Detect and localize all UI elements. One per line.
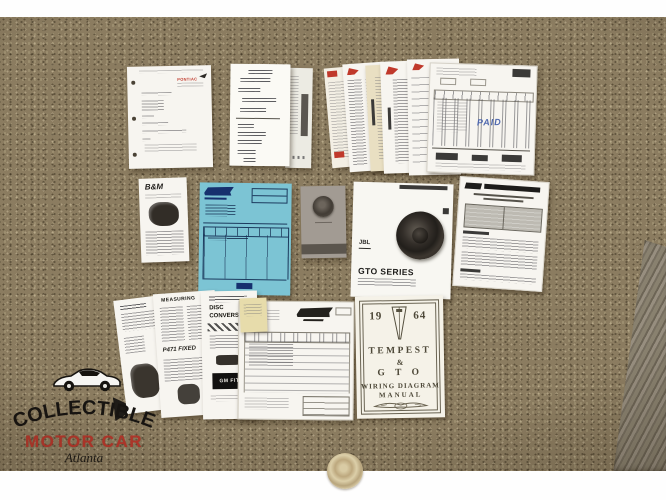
photo-of-documents: PONTIAC — [0, 0, 666, 500]
stamp-block — [502, 155, 522, 163]
section-bar — [463, 230, 489, 235]
text-lines — [124, 336, 146, 354]
letterhead-bird-icon — [199, 73, 207, 78]
logo-underline — [303, 319, 324, 321]
footer-lines — [245, 398, 289, 410]
handwriting-line — [238, 124, 254, 128]
logo-underline — [359, 248, 371, 249]
clutch-illustration — [148, 201, 179, 226]
speaker-photo — [395, 211, 444, 260]
hole-punch — [133, 153, 137, 157]
title-line — [483, 198, 523, 203]
invoice-stack: PAID — [322, 58, 538, 180]
table-body — [202, 234, 289, 279]
letter-header-line — [139, 69, 203, 73]
divider — [253, 195, 287, 196]
dealer-watermark: COLLECTIBLE MOTOR CAR Atlanta — [8, 366, 160, 472]
logo-underline — [205, 197, 227, 199]
model-gto: G T O — [356, 367, 444, 379]
address-lines — [205, 204, 235, 216]
bm-logo: B&M — [145, 182, 164, 192]
year-left: 19 — [369, 310, 382, 322]
text-lines — [460, 273, 536, 284]
entry-line — [208, 237, 248, 241]
wiring-diagram-manual: 19 64 TEMPEST & G T O WIRING DIAGRAM MAN… — [355, 295, 445, 419]
text-lines — [145, 143, 197, 152]
text-lines — [347, 79, 367, 166]
part-number: P471 FIXED — [163, 345, 197, 353]
text-lines — [461, 251, 538, 270]
hole-punch — [131, 81, 135, 85]
speaker-center-cap — [412, 227, 428, 243]
invoice-header-chip — [512, 69, 530, 78]
vendor-script-logo — [296, 307, 333, 317]
receipt-dark-block — [301, 94, 309, 136]
emblem-booklet — [300, 186, 346, 259]
vendor-script-logo — [203, 186, 234, 195]
handwriting-line — [238, 88, 260, 92]
receipt-row-marks — [287, 156, 307, 159]
pontiac-arrowhead-icon — [391, 306, 408, 340]
cover-photo-band — [301, 244, 346, 255]
blue-invoice — [198, 182, 292, 295]
handwriting-line — [244, 158, 256, 162]
vendor-logo-red — [347, 67, 359, 75]
jbl-logo: JBL — [359, 240, 371, 246]
text-lines — [437, 102, 468, 133]
heading-line — [120, 303, 146, 310]
vendor-logo-black — [464, 182, 482, 189]
text-lines — [142, 100, 164, 110]
footer-logo-chip — [236, 283, 252, 289]
winged-emblem-icon — [373, 400, 429, 413]
svg-text:COLLECTIBLE: COLLECTIBLE — [10, 397, 158, 433]
handwritten-note — [229, 64, 290, 167]
handwriting-line — [240, 78, 270, 82]
caliper-illustration — [177, 383, 200, 404]
title-manual: MANUAL — [357, 390, 445, 400]
dark-mark — [388, 107, 392, 129]
text-lines — [177, 82, 203, 87]
text-lines — [142, 115, 154, 118]
handwriting-line — [238, 150, 256, 154]
text-lines — [145, 230, 184, 255]
watermark-script: Atlanta — [8, 450, 160, 466]
pontiac-brand-mark: PONTIAC — [177, 76, 197, 81]
divider — [236, 118, 280, 119]
invoice-sheet-front: PAID — [426, 62, 537, 175]
handwriting-line — [242, 98, 276, 102]
text-column — [160, 306, 185, 342]
text-lines — [142, 138, 150, 141]
vendor-logo-red — [412, 63, 424, 70]
text-lines — [142, 122, 168, 126]
entry-lines — [249, 344, 293, 366]
handwriting-line — [238, 132, 266, 136]
text-lines — [435, 163, 525, 172]
measuring-heading: MEASURING — [161, 295, 196, 303]
ampersand: & — [356, 357, 444, 368]
jbl-speaker-manual: JBL GTO SERIES — [350, 182, 453, 300]
watermark-title: COLLECTIBLE — [10, 397, 158, 433]
dark-mark — [371, 99, 375, 125]
cover-top-bar — [399, 185, 447, 190]
stamp-block — [472, 155, 488, 161]
small-logo-chip — [216, 355, 240, 365]
vendor-logo-red — [334, 151, 344, 158]
header-black-bar — [484, 184, 540, 193]
totals-box — [303, 396, 350, 416]
parts-table — [463, 203, 542, 232]
wheel-emblem-photo — [313, 196, 334, 217]
small-box — [440, 78, 456, 85]
sticky-note — [239, 298, 267, 333]
top-white-band — [0, 0, 666, 17]
watermark-subtitle: MOTOR CAR — [8, 432, 160, 452]
text-lines — [142, 130, 186, 134]
stamp-block — [436, 153, 458, 161]
text-lines — [141, 92, 171, 96]
year-right: 64 — [413, 310, 426, 322]
divider — [202, 278, 286, 280]
conversion-title-1: DISC — [209, 305, 223, 311]
title-wiring-diagram: WIRING DIAGRAM — [356, 381, 444, 391]
table-foot — [327, 453, 363, 489]
watermark-arc-title: COLLECTIBLE — [8, 388, 160, 434]
handwriting-line — [238, 140, 262, 144]
text-lines — [145, 193, 181, 198]
text-lines — [436, 68, 476, 77]
divider — [203, 222, 287, 224]
handwriting-line — [248, 70, 272, 74]
text-lines — [462, 236, 539, 253]
small-box — [470, 79, 486, 86]
invoice-no-box — [335, 307, 351, 315]
section-bar — [460, 268, 480, 272]
typed-letter: PONTIAC — [127, 65, 213, 169]
model-tempest: TEMPEST — [356, 345, 444, 357]
note-lines — [244, 304, 262, 317]
paid-stamp: PAID — [477, 117, 502, 128]
install-instructions-sheet — [452, 176, 549, 292]
subtitle-lines — [358, 278, 416, 288]
gto-series-title: GTO SERIES — [358, 266, 414, 278]
column-divider — [502, 207, 505, 229]
hole-punch — [132, 117, 136, 121]
bm-instruction-leaflet: B&M — [139, 177, 190, 263]
table-body — [244, 341, 350, 394]
invoice-number-box — [252, 188, 288, 204]
cover-corner-chip — [443, 208, 449, 214]
caption-line — [315, 222, 332, 223]
vendor-logo-red — [385, 66, 398, 74]
handwriting-line — [240, 108, 266, 112]
vendor-logo-red — [327, 71, 337, 78]
